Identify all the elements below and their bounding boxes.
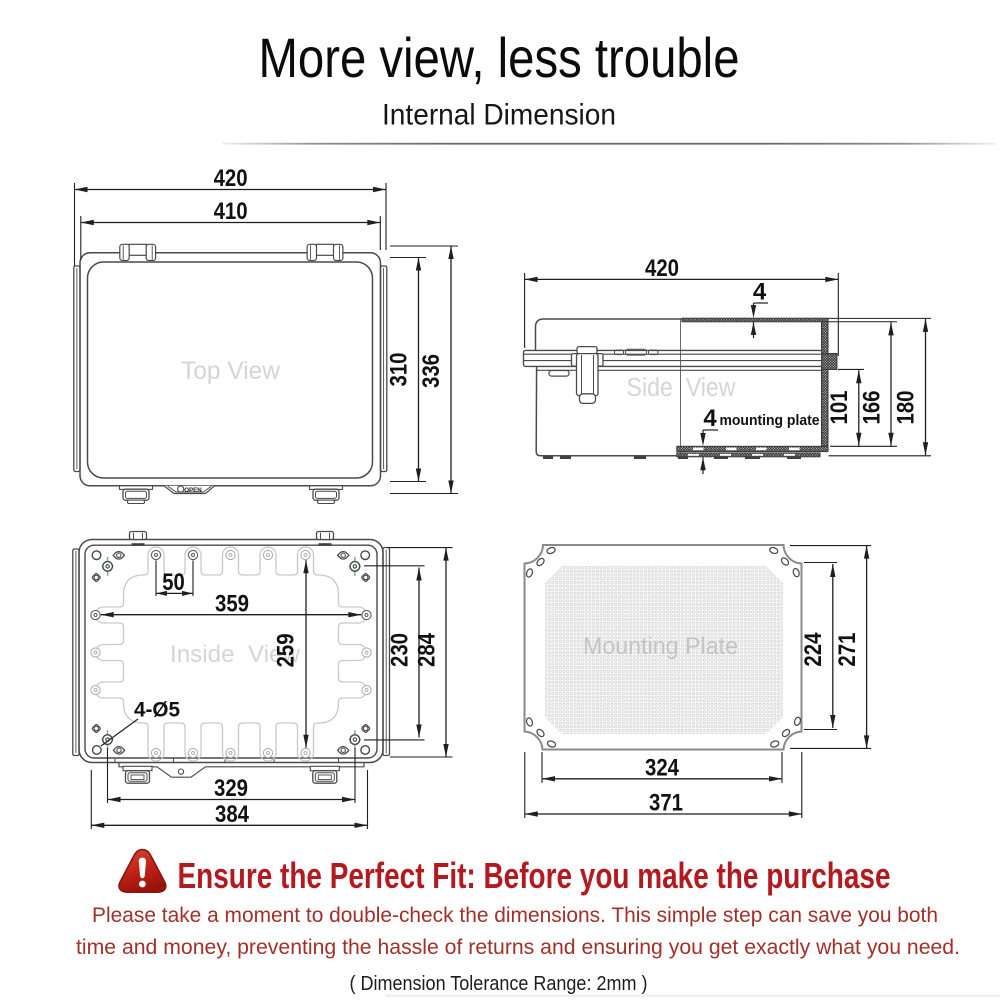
- svg-text:Side View: Side View: [627, 374, 737, 402]
- svg-text:4: 4: [703, 405, 717, 432]
- svg-text:Top View: Top View: [181, 357, 281, 385]
- svg-text:310: 310: [386, 353, 413, 387]
- svg-text:4: 4: [753, 279, 767, 306]
- svg-text:420: 420: [214, 165, 248, 192]
- svg-text:4-Ø5: 4-Ø5: [134, 699, 180, 722]
- svg-text:224: 224: [800, 632, 827, 667]
- svg-text:180: 180: [893, 391, 920, 425]
- svg-text:Please take a moment to double: Please take a moment to double-check the…: [92, 903, 938, 927]
- svg-text:( Dimension Tolerance Range: 2: ( Dimension Tolerance Range: 2mm ): [350, 973, 648, 995]
- svg-text:Internal Dimension: Internal Dimension: [382, 99, 616, 132]
- svg-text:384: 384: [215, 801, 250, 828]
- svg-text:371: 371: [649, 790, 683, 817]
- svg-text:Ensure the Perfect Fit: Before: Ensure the Perfect Fit: Before you make …: [178, 855, 891, 896]
- svg-text:OPEN: OPEN: [184, 487, 202, 494]
- svg-text:More view, less trouble: More view, less trouble: [259, 26, 740, 89]
- svg-text:Mounting Plate: Mounting Plate: [583, 633, 738, 660]
- svg-text:50: 50: [162, 569, 185, 596]
- svg-text:259: 259: [273, 633, 300, 667]
- svg-text:336: 336: [418, 354, 445, 388]
- svg-text:time and money, preventing the: time and money, preventing the hassle of…: [76, 935, 960, 959]
- svg-text:359: 359: [215, 590, 249, 617]
- svg-text:324: 324: [645, 755, 680, 782]
- svg-text:271: 271: [834, 633, 861, 667]
- svg-text:101: 101: [826, 391, 853, 425]
- svg-text:410: 410: [214, 198, 248, 225]
- svg-text:166: 166: [859, 391, 886, 425]
- svg-text:420: 420: [645, 255, 679, 282]
- svg-text:284: 284: [414, 632, 441, 667]
- svg-text:230: 230: [387, 633, 414, 667]
- svg-text:329: 329: [214, 775, 248, 802]
- svg-text:mounting plate: mounting plate: [720, 413, 820, 429]
